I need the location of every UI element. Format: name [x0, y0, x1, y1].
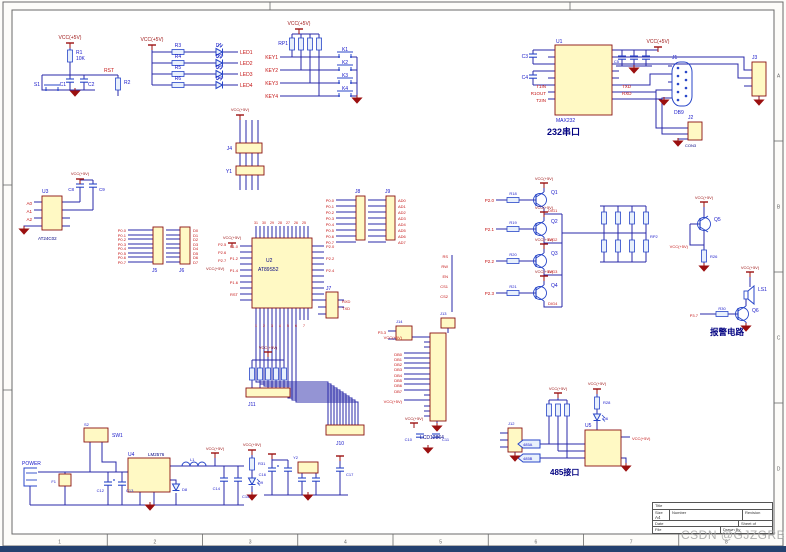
zone-number: 4 [344, 540, 347, 546]
net-label: R1OUT [531, 91, 547, 96]
app-bottom-bar [0, 546, 786, 552]
ref-label: J10 [336, 441, 344, 447]
ref-label: 10K [76, 56, 86, 62]
power-label: VCC(+5V) [288, 21, 311, 27]
resistor [250, 368, 255, 380]
ref-label: C9 [99, 187, 105, 192]
component-box [356, 196, 365, 240]
net-label: 27 [286, 221, 290, 225]
net-label: VCC(+5V) [670, 244, 689, 249]
ref-label: Q2 [551, 219, 558, 225]
zone-number: 1 [58, 540, 61, 546]
ref-label: DB9 [674, 110, 684, 116]
ref-label: J11 [248, 402, 256, 408]
ref-label: J6 [179, 268, 185, 274]
component-box [236, 143, 262, 153]
ref-label: K3 [342, 73, 348, 79]
component-box [752, 62, 766, 96]
resistor [616, 212, 621, 224]
titleblock-size-value: A4 [655, 516, 669, 520]
ref-label: C8 [68, 187, 74, 192]
annotation: AT89S52 [258, 267, 279, 273]
net-label: DB6 [394, 383, 403, 388]
net-label: P2.5 [218, 242, 227, 247]
component-box [430, 333, 446, 421]
net-label: RST [104, 68, 114, 74]
ref-label: J5 [152, 268, 158, 274]
ref-label: MAX232 [556, 118, 575, 124]
net-label: P1.0 [230, 244, 239, 249]
ref-label: Y2 [293, 455, 299, 460]
power-label: VCC(+5V) [141, 37, 164, 43]
annotation: LCD12864 [420, 435, 444, 441]
pushbutton [338, 82, 340, 84]
net-label: LED4 [240, 83, 253, 89]
ref-label: J7 [326, 286, 332, 292]
net-label: DB3 [394, 367, 403, 372]
pushbutton [338, 69, 340, 71]
ref-label: Q1 [551, 190, 558, 196]
sheet-area [12, 10, 774, 534]
net-label: P0.2 [326, 210, 335, 215]
net-label: RXD [622, 91, 632, 96]
net-label: A0 [26, 201, 32, 206]
net-label: P0.7 [326, 240, 335, 245]
zone-number: 3 [249, 540, 252, 546]
power-label: VCC(+5V) [588, 381, 607, 386]
ref-label: F1 [51, 479, 56, 484]
ref-label: R18 [509, 191, 517, 196]
ref-label: C13 [126, 488, 134, 493]
net-label: AD0 [398, 198, 407, 203]
ref-label: R5 [175, 65, 182, 71]
net-label: P2.0 [485, 198, 495, 203]
component-box [84, 428, 108, 442]
titleblock-file-label: File [655, 527, 661, 532]
component-box [42, 196, 62, 230]
resistor [556, 404, 561, 416]
ref-label: RP2 [650, 234, 659, 239]
ref-label: C1 [60, 82, 67, 88]
net-label: AD5 [398, 228, 407, 233]
ref-label: R20 [509, 252, 517, 257]
ref-label: U3 [42, 189, 49, 195]
titleblock-revision-cell: Revision [742, 510, 772, 520]
pushbutton [350, 95, 352, 97]
resistor [274, 368, 279, 380]
annotation: CON3 [685, 143, 697, 148]
pushbutton [350, 69, 352, 71]
ref-label: C5 [614, 59, 620, 64]
resistor [250, 458, 255, 470]
titleblock-sheet-cell: Sheet of [738, 521, 772, 526]
ref-label: R6 [175, 76, 182, 82]
net-label: VCC(+5V) [632, 436, 651, 441]
titleblock-revision-label: Revision [745, 510, 760, 515]
power-label: VCC(+5V) [405, 416, 424, 421]
db9-pin [677, 75, 680, 78]
component-box [508, 428, 522, 452]
net-label: P2.3 [485, 291, 495, 296]
titleblock-date-cell: Date [653, 521, 738, 526]
net-label: DB7 [394, 389, 403, 394]
ref-label: C4 [522, 75, 529, 81]
net-label: P1.4 [230, 268, 239, 273]
csdn-watermark: CSDN @GJZGRB [681, 528, 785, 542]
net-label: P0.5 [326, 228, 335, 233]
ref-label: C17 [346, 472, 354, 477]
db9-pin [677, 99, 680, 102]
zone-number: 7 [630, 540, 633, 546]
net-label: 29 [270, 221, 274, 225]
net-label: D7 [193, 260, 199, 265]
zone-number: 6 [534, 540, 537, 546]
ref-label: C2 [88, 82, 95, 88]
resistor [644, 212, 649, 224]
resistor [282, 368, 287, 380]
resistor [702, 250, 707, 262]
net-label: DIG4 [548, 301, 558, 306]
ref-label: Q5 [714, 217, 721, 223]
resistor [299, 38, 304, 50]
net-label: TXD [622, 84, 632, 89]
ref-label: Q4 [551, 283, 558, 289]
resistor [258, 368, 263, 380]
ref-label: 485A [523, 442, 533, 447]
titleblock-title-label: Title [655, 504, 662, 509]
pushbutton [45, 89, 47, 91]
net-label: T1IN [536, 84, 546, 89]
ref-label: K4 [342, 86, 348, 92]
resistor [507, 198, 519, 203]
pushbutton [338, 56, 340, 58]
net-label: 5 [287, 324, 289, 328]
power-label: VCC(+5V) [206, 266, 225, 271]
annotation: 485接口 [550, 467, 579, 477]
ref-label: R21 [509, 284, 517, 289]
component-box [326, 425, 364, 435]
ref-label: C12 [97, 488, 105, 493]
net-label: 2 [263, 324, 265, 328]
titleblock-number-label: Number [672, 510, 686, 515]
ref-label: J1 [672, 55, 678, 61]
ref-label: S1 [34, 82, 40, 88]
component-box [236, 166, 264, 175]
net-label: RST [230, 292, 239, 297]
net-label: KEY2 [265, 68, 278, 74]
resistor [602, 240, 607, 252]
power-label: VCC(+5V) [647, 39, 670, 45]
ref-label: Q3 [551, 251, 558, 257]
resistor [644, 240, 649, 252]
ref-label: C11 [442, 437, 450, 442]
component-box [153, 227, 163, 264]
net-label: 25 [302, 221, 306, 225]
resistor [547, 404, 552, 416]
ref-label: J2 [688, 115, 694, 121]
ref-label: LS1 [758, 287, 767, 293]
ref-label: J3 [752, 55, 758, 61]
net-label: LED3 [240, 72, 253, 78]
net-label: 3 [271, 324, 273, 328]
net-label: AD7 [398, 240, 407, 245]
ref-label: R31 [258, 461, 266, 466]
net-label: P0.7 [118, 260, 127, 265]
zone-number: 2 [153, 540, 156, 546]
component-box [386, 196, 395, 240]
component-box [441, 318, 455, 328]
ref-label: C10 [405, 437, 413, 442]
ref-label: D4 [216, 76, 223, 82]
ref-label: C15 [242, 494, 250, 499]
component-box [246, 388, 290, 397]
ref-label: K1 [342, 47, 348, 53]
net-label: VCC(+5V) [384, 335, 403, 340]
component-box [128, 458, 170, 492]
net-label: 7 [303, 324, 305, 328]
power-label: VCC(+5V) [535, 176, 554, 181]
net-label: RXD [342, 299, 351, 304]
net-label: RW [441, 264, 448, 269]
component-box [252, 238, 312, 308]
net-label: LED2 [240, 61, 253, 67]
resistor [290, 38, 295, 50]
net-label: P2.2 [485, 259, 495, 264]
ref-label: J12 [508, 421, 515, 426]
net-label: P2.2 [326, 256, 335, 261]
net-label: P0.4 [326, 222, 335, 227]
ref-label: R26 [710, 254, 718, 259]
ref-label: D8 [182, 487, 188, 492]
net-label: AD3 [398, 216, 407, 221]
net-label: DIG2 [548, 237, 558, 242]
net-label: P2.4 [326, 268, 335, 273]
annotation: 232串口 [547, 126, 580, 137]
resistor [317, 38, 322, 50]
ref-label: R19 [509, 220, 517, 225]
resistor [630, 240, 635, 252]
net-label: A1 [26, 209, 32, 214]
net-label: 6 [295, 324, 297, 328]
net-label: AD4 [398, 222, 407, 227]
ref-label: R3 [175, 43, 182, 49]
net-label: TXD [342, 306, 350, 311]
ref-label: D1 [216, 43, 223, 49]
db9-pin [677, 91, 680, 94]
zone-number: 5 [439, 540, 442, 546]
net-label: P3.3 [378, 330, 387, 335]
resistor [616, 240, 621, 252]
db9-pin [677, 67, 680, 70]
ref-label: L1 [190, 457, 195, 462]
net-label: P2.1 [485, 227, 495, 232]
resistor [266, 368, 271, 380]
resistor [116, 78, 121, 90]
net-label: KEY1 [265, 55, 278, 61]
net-label: P0.1 [326, 204, 335, 209]
ref-label: D3 [216, 65, 223, 71]
ref-label: SW1 [112, 433, 123, 439]
pushbutton [57, 89, 59, 91]
component-box [585, 430, 621, 466]
ref-label: J8 [355, 189, 361, 195]
ref-label: D9 [258, 480, 264, 485]
net-label: 30 [262, 221, 266, 225]
ref-label: R2 [124, 80, 131, 86]
ref-label: J9 [385, 189, 391, 195]
db9-pin [685, 71, 688, 74]
ref-label: U5 [585, 423, 592, 429]
ref-label: RP1 [278, 41, 288, 47]
ref-label: D2 [216, 54, 223, 60]
power-label: VCC(+5V) [243, 442, 262, 447]
ref-label: U1 [556, 39, 563, 45]
component-box [180, 227, 190, 264]
resistor [507, 259, 519, 264]
zone-letter: C [777, 336, 781, 342]
ref-label: Y1 [226, 169, 232, 175]
net-label: AD2 [398, 210, 407, 215]
schematic-canvas: VCC(+5V)RSTR110KC1C2R2S1VCC(+5V)R3R4R5R6… [0, 0, 786, 552]
ref-label: POWER [22, 461, 41, 467]
net-label: 1 [255, 324, 257, 328]
resistor [172, 83, 184, 88]
resistor [68, 50, 73, 62]
titleblock-date-label: Date [655, 521, 663, 526]
ref-label: 485B [523, 456, 533, 461]
resistor [630, 212, 635, 224]
net-label: DIG3 [548, 269, 558, 274]
ref-label: J4 [227, 146, 233, 152]
net-label: AD6 [398, 234, 407, 239]
net-label: 4 [279, 324, 281, 328]
net-label: CS2 [440, 294, 449, 299]
power-label: VCC(+5V) [206, 446, 225, 451]
net-label: 26 [294, 221, 298, 225]
pushbutton [350, 82, 352, 84]
resistor [602, 212, 607, 224]
ref-label: R30 [718, 306, 726, 311]
ref-label: J13 [440, 311, 447, 316]
annotation: U2 [266, 258, 273, 264]
net-label: P2.7 [218, 258, 227, 263]
power-label: VCC(+5V) [259, 345, 278, 350]
ref-label: J14 [396, 319, 403, 324]
resistor [507, 227, 519, 232]
power-label: VCC(+5V) [695, 195, 714, 200]
net-label: P0.6 [326, 234, 335, 239]
power-label: VCC(+5V) [231, 107, 250, 112]
net-label: CS1 [440, 284, 449, 289]
component-box [555, 45, 612, 115]
ref-label: R28 [603, 400, 611, 405]
ref-label: C14 [213, 486, 221, 491]
titleblock-sheet-label: Sheet of [741, 521, 756, 526]
power-label: VCC(+5V) [741, 265, 760, 270]
component-box [326, 292, 338, 318]
db9-pin [685, 79, 688, 82]
resistor [595, 397, 600, 409]
db9-pin [677, 83, 680, 86]
net-label: P1.2 [230, 256, 239, 261]
net-label: P0.0 [326, 198, 335, 203]
ref-label: D6 [603, 416, 609, 421]
resistor [565, 404, 570, 416]
component-box [688, 122, 702, 140]
pushbutton [338, 95, 340, 97]
titleblock-number-cell: Number [670, 510, 742, 520]
ref-label: K2 [342, 60, 348, 66]
net-label: DIG1 [548, 208, 558, 213]
net-label: VCC(+5V) [384, 399, 403, 404]
component-box [298, 462, 318, 473]
net-label: KEY4 [265, 94, 278, 100]
ref-label: S2 [84, 422, 90, 427]
ref-label: U4 [128, 452, 135, 458]
net-label: P1.6 [230, 280, 239, 285]
net-label: RS [442, 254, 448, 259]
net-label: A2 [26, 217, 32, 222]
schematic-page[interactable]: VCC(+5V)RSTR110KC1C2R2S1VCC(+5V)R3R4R5R6… [0, 0, 786, 552]
component-box [59, 474, 71, 486]
annotation: LM2576 [148, 452, 165, 457]
zone-letter: D [777, 467, 781, 473]
db9-pin [685, 87, 688, 90]
net-label: KEY3 [265, 81, 278, 87]
annotation: 报警电路 [710, 327, 745, 337]
power-label: VCC(+5V) [71, 171, 90, 176]
ref-label: Q6 [752, 308, 759, 314]
power-label: VCC(+5V) [223, 235, 242, 240]
annotation: AT24C02 [38, 236, 57, 241]
net-label: AD1 [398, 204, 407, 209]
ref-label: R4 [175, 54, 182, 60]
resistor [716, 312, 728, 317]
net-label: EN [442, 274, 448, 279]
ref-label: C16 [259, 472, 267, 477]
power-label: VCC(+5V) [549, 386, 568, 391]
titleblock-size-cell: Size A4 [653, 510, 670, 520]
ref-label: C3 [522, 54, 529, 60]
resistor [308, 38, 313, 50]
net-label: T2IN [536, 98, 546, 103]
net-label: P3.7 [690, 313, 699, 318]
net-label: 31 [254, 221, 258, 225]
net-label: P2.6 [218, 250, 227, 255]
net-label: 28 [278, 221, 282, 225]
db9-pin [685, 95, 688, 98]
net-label: LED1 [240, 50, 253, 56]
resistor [507, 291, 519, 296]
power-label: VCC(+5V) [59, 35, 82, 41]
pushbutton [350, 56, 352, 58]
net-label: P0.3 [326, 216, 335, 221]
